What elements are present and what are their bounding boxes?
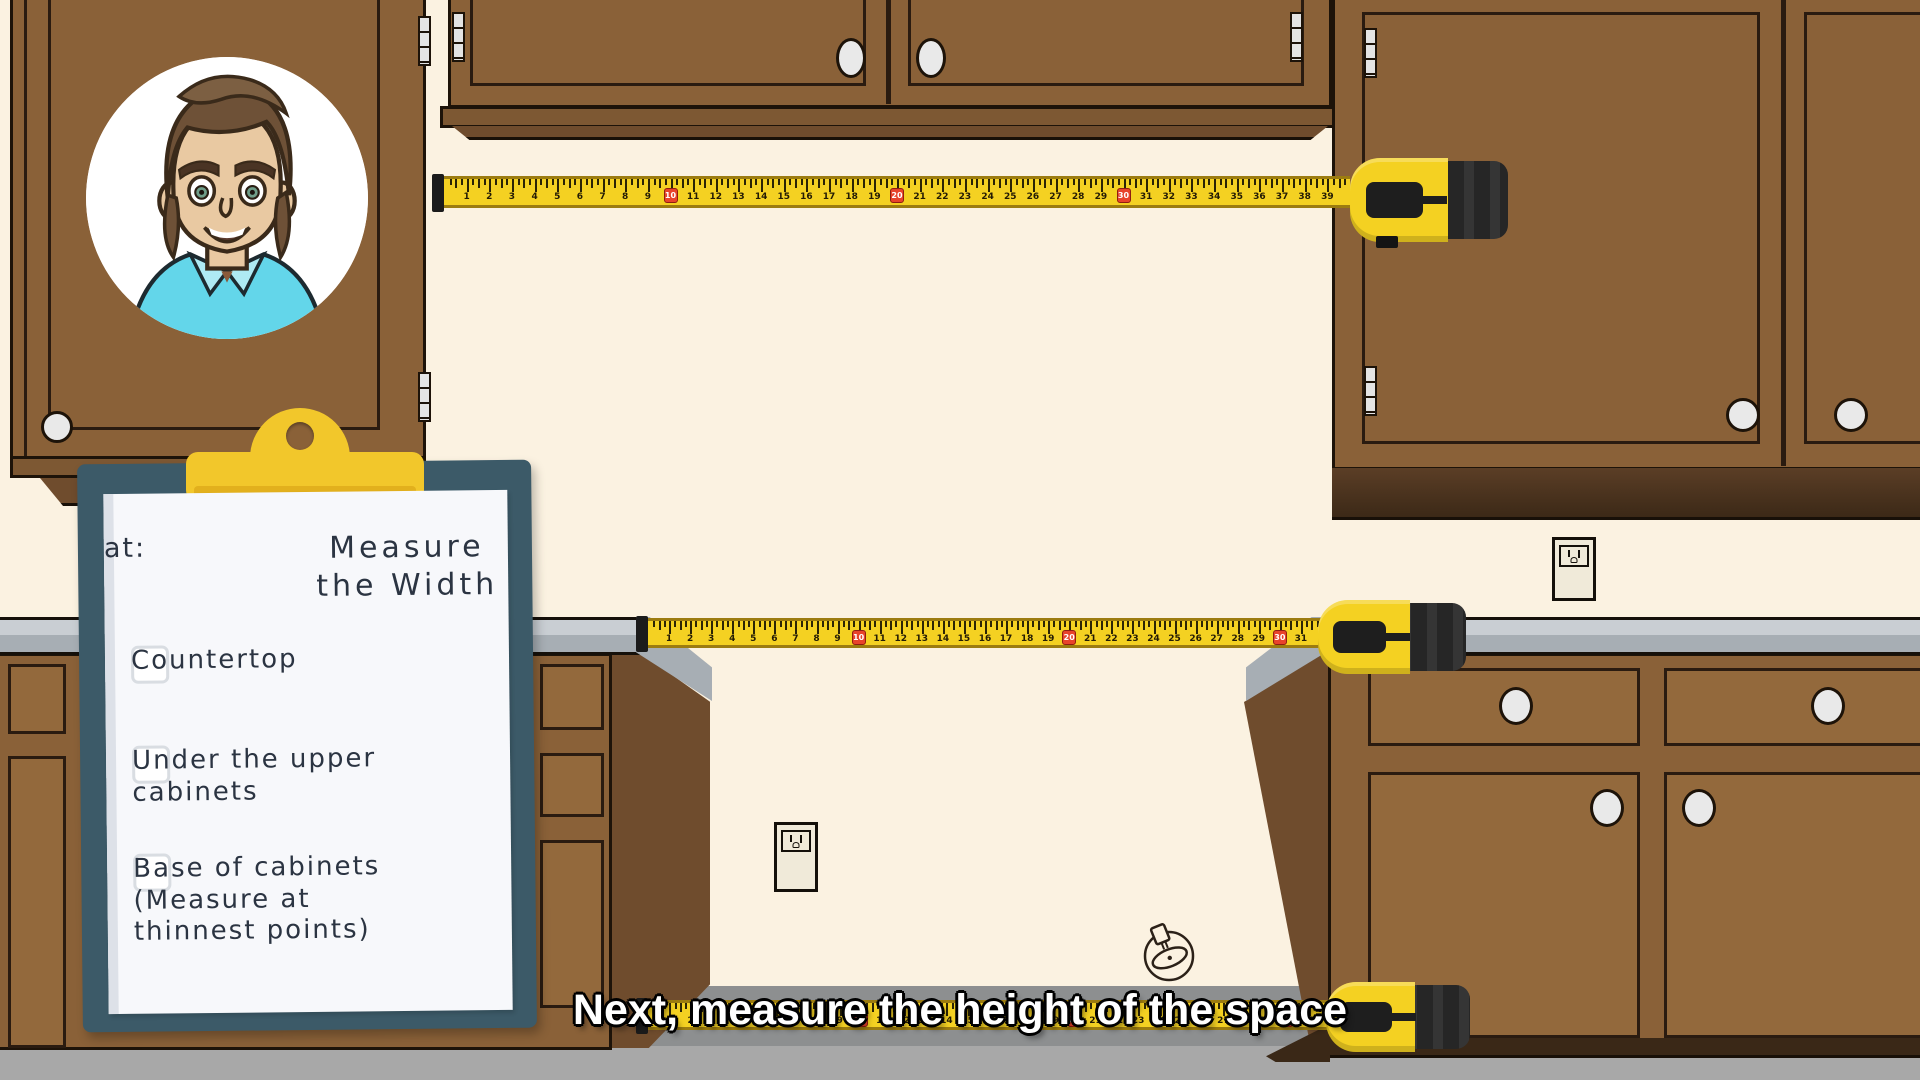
cabinet-bottom-rail	[440, 106, 1340, 128]
cabinet-hinge	[418, 16, 431, 66]
drawer-panel	[540, 664, 604, 730]
tape-number: 4	[724, 634, 740, 644]
upper-cabinet-center	[440, 0, 1340, 145]
tape-number: 21	[912, 192, 928, 202]
tape-highlight-number: 30	[1273, 630, 1287, 645]
tape-number: 11	[872, 634, 888, 644]
cabinet-door-knob	[916, 38, 946, 78]
tape-number: 38	[1297, 192, 1313, 202]
cabinet-door-divider	[1781, 0, 1786, 466]
tape-number: 25	[1002, 192, 1018, 202]
cabinet-door-panel	[908, 0, 1304, 86]
tape-number: 3	[703, 634, 719, 644]
subtitle-caption: Next, measure the height of the space	[0, 986, 1920, 1035]
cabinet-hinge	[452, 12, 465, 62]
tape-number: 22	[934, 192, 950, 202]
cabinet-door-knob	[836, 38, 866, 78]
tape-number: 36	[1251, 192, 1267, 202]
tape-number: 12	[708, 192, 724, 202]
checklist-label: Base of cabinets (Measure at thinnest po…	[133, 851, 382, 949]
tape-hook	[432, 174, 444, 212]
tape-highlight-number: 10	[664, 188, 678, 203]
tape-number: 8	[617, 192, 633, 202]
presenter-avatar-illustration	[86, 57, 368, 339]
drawer-panel	[1664, 668, 1920, 746]
tape-number: 2	[481, 192, 497, 202]
tape-body-grip	[1438, 161, 1508, 238]
tape-number: 13	[730, 192, 746, 202]
tape-hook	[636, 616, 648, 652]
tape-highlight-number: 10	[852, 630, 866, 645]
tape-number: 23	[957, 192, 973, 202]
tape-number: 15	[956, 634, 972, 644]
tape-number: 12	[893, 634, 909, 644]
tape-number: 31	[1138, 192, 1154, 202]
drawer-knob	[1811, 687, 1845, 725]
tape-number: 15	[776, 192, 792, 202]
tape-number: 23	[1124, 634, 1140, 644]
drawer-knob	[1499, 687, 1533, 725]
tape-number: 25	[1167, 634, 1183, 644]
tape-number: 34	[1206, 192, 1222, 202]
clipboard-clip-hole	[286, 422, 314, 450]
tape-number: 6	[766, 634, 782, 644]
cabinet-door-knob	[1834, 398, 1868, 432]
tape-body-tab	[1376, 236, 1398, 248]
tape-number: 5	[549, 192, 565, 202]
checklist-item: Base of cabinets (Measure at thinnest po…	[133, 850, 497, 854]
cabinet-door-divider	[886, 0, 891, 104]
tape-number: 13	[914, 634, 930, 644]
tape-number: 26	[1025, 192, 1041, 202]
tape-number: 17	[998, 634, 1014, 644]
tape-number: 28	[1230, 634, 1246, 644]
tape-number: 6	[572, 192, 588, 202]
tape-number: 27	[1209, 634, 1225, 644]
drawer-panel	[8, 664, 66, 734]
tape-number: 17	[821, 192, 837, 202]
tape-number: 33	[1183, 192, 1199, 202]
tape-number: 29	[1093, 192, 1109, 202]
door-panel	[540, 840, 604, 1008]
cabinet-door-knob	[1726, 398, 1760, 432]
tape-number: 19	[866, 192, 882, 202]
tape-number: 8	[809, 634, 825, 644]
tape-body-clip	[1333, 621, 1386, 652]
tape-highlight-number: 20	[1062, 630, 1076, 645]
clipboard-title: Measure the Width at:	[104, 528, 508, 532]
clipboard-title-suffix: at:	[104, 532, 147, 566]
outlet-receptacle	[1559, 545, 1589, 567]
tape-number: 39	[1319, 192, 1335, 202]
tape-number: 18	[1019, 634, 1035, 644]
presenter-avatar	[86, 57, 368, 339]
outlet-receptacle	[781, 830, 811, 852]
tape-number: 28	[1070, 192, 1086, 202]
checklist-item: Countertop	[131, 642, 495, 646]
kitchen-scene: 1234567891011121314151617181920212223242…	[0, 0, 1920, 1080]
tape-measure-body	[1350, 158, 1508, 242]
checklist-label: Under the upper cabinets	[132, 743, 433, 810]
tape-strip: 1234567891011121314151617181920212223242…	[648, 618, 1322, 648]
tape-body-grip	[1401, 603, 1466, 671]
tape-strip: 1234567891011121314151617181920212223242…	[444, 176, 1350, 208]
tape-number: 3	[504, 192, 520, 202]
tape-number: 16	[798, 192, 814, 202]
drawer-panel	[540, 753, 604, 817]
tape-number: 24	[980, 192, 996, 202]
tape-body-clip	[1366, 182, 1423, 217]
tape-number: 9	[640, 192, 656, 202]
tape-number: 5	[745, 634, 761, 644]
tape-number: 29	[1251, 634, 1267, 644]
tape-number: 7	[787, 634, 803, 644]
tape-number: 7	[595, 192, 611, 202]
tape-number: 9	[830, 634, 846, 644]
tape-number: 11	[685, 192, 701, 202]
cabinet-hinge	[1364, 28, 1377, 78]
cabinet-door-panel	[1804, 12, 1920, 444]
clipboard-paper: Measure the Width at: Countertop Under t…	[103, 490, 512, 1014]
clipboard: Measure the Width at: Countertop Under t…	[60, 400, 540, 1060]
tape-number: 4	[527, 192, 543, 202]
tape-number: 14	[753, 192, 769, 202]
tape-number: 18	[844, 192, 860, 202]
tape-number: 24	[1146, 634, 1162, 644]
tape-number: 22	[1103, 634, 1119, 644]
tape-number: 2	[682, 634, 698, 644]
tape-number: 19	[1040, 634, 1056, 644]
tape-number: 16	[977, 634, 993, 644]
cabinet-bottom-trim	[452, 126, 1328, 140]
tape-number: 21	[1082, 634, 1098, 644]
tape-number: 14	[935, 634, 951, 644]
cabinet-edge-line	[24, 0, 27, 458]
cabinet-hinge	[1290, 12, 1303, 62]
tape-number: 35	[1229, 192, 1245, 202]
wall-outlet-icon	[774, 822, 818, 892]
checklist-item: Under the upper cabinets	[132, 742, 496, 746]
clipboard-title-text: Measure the Width	[306, 528, 509, 605]
tape-number: 27	[1048, 192, 1064, 202]
tape-measure-body	[1318, 600, 1466, 674]
tape-number: 1	[459, 192, 475, 202]
tape-number: 37	[1274, 192, 1290, 202]
tape-highlight-number: 20	[890, 188, 904, 203]
door-knob	[1590, 789, 1624, 827]
cabinet-underside	[1332, 468, 1920, 520]
tape-number: 32	[1161, 192, 1177, 202]
cabinet-door-panel	[470, 0, 866, 86]
tape-highlight-number: 30	[1117, 188, 1131, 203]
tape-number: 31	[1293, 634, 1309, 644]
dish-sketch-icon	[1140, 918, 1198, 984]
wall-outlet-icon	[1552, 537, 1596, 601]
cabinet-hinge	[1364, 366, 1377, 416]
tape-number: 1	[661, 634, 677, 644]
tape-number: 26	[1188, 634, 1204, 644]
door-knob	[1682, 789, 1716, 827]
upper-cabinet-right	[1330, 0, 1920, 525]
checklist-label: Countertop	[131, 644, 298, 677]
